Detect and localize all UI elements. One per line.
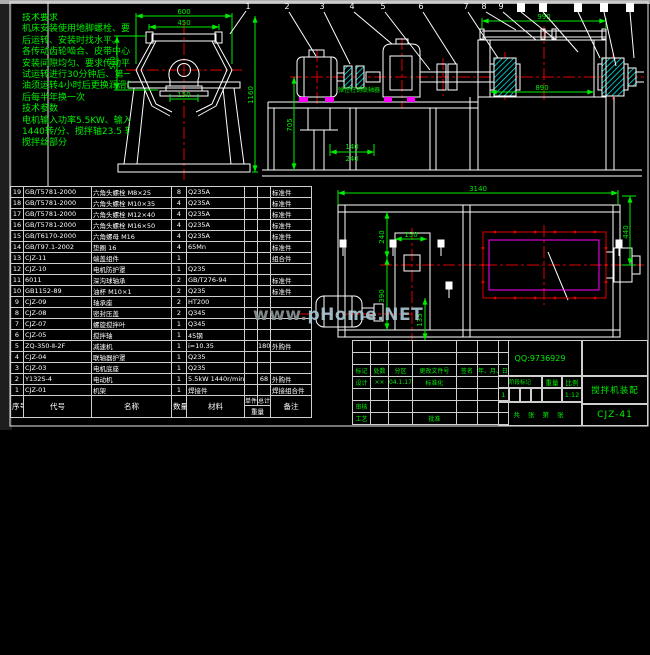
bom-name: 垫圈 16 bbox=[92, 242, 172, 253]
bom-code: CJZ-05 bbox=[24, 330, 92, 341]
bom-seq: 15 bbox=[11, 231, 24, 242]
bom-seq: 9 bbox=[11, 297, 24, 308]
dim-end-top: 600 bbox=[177, 8, 190, 16]
technical-notes: 技术要求机床安装使用地脚螺栓、要求安装后运转、安装时找水平。各传动齿轮啮合、皮带… bbox=[22, 13, 130, 150]
bom-seq: 2 bbox=[11, 374, 24, 385]
bom-seq: 19 bbox=[11, 187, 24, 198]
bom-material: Q235A bbox=[187, 231, 245, 242]
bom-seq: 18 bbox=[11, 198, 24, 209]
tb-stage-box bbox=[531, 388, 542, 402]
bom-weight-unit bbox=[245, 198, 258, 209]
bom-weight-unit bbox=[245, 330, 258, 341]
bom-weight-total bbox=[258, 220, 271, 231]
bom-header-weight-group: 单件 总计 重量 bbox=[245, 396, 270, 417]
tb-label-mark: 标记 bbox=[353, 365, 371, 377]
bom-name: 电机防护罩 bbox=[92, 264, 172, 275]
bom-seq: 12 bbox=[11, 264, 24, 275]
bom-header-weight: 重量 bbox=[245, 406, 270, 417]
bom-note: 组合件 bbox=[271, 253, 312, 264]
dim-side-b: 240 bbox=[345, 155, 358, 163]
bom-qty: 1 bbox=[172, 352, 187, 363]
tb-label-stage: 阶段标记 bbox=[498, 376, 542, 388]
bom-note: 标准件 bbox=[271, 242, 312, 253]
dim-plan-d1: 240 bbox=[378, 230, 386, 243]
tb-stage-value: 1 bbox=[498, 388, 509, 402]
dim-side-pipe: 990 bbox=[537, 13, 550, 21]
bom-weight-unit bbox=[245, 253, 258, 264]
balloon-leaders bbox=[289, 12, 634, 70]
bom-seq: 1 bbox=[11, 385, 24, 396]
balloon-squares bbox=[517, 3, 634, 12]
bom-name: 深沟球轴承 bbox=[92, 275, 172, 286]
tb-label-doc: 更改文件号 bbox=[412, 365, 456, 377]
bom-material: 焊接件 bbox=[187, 385, 245, 396]
bom-weight-unit bbox=[245, 286, 258, 297]
bom-code: ZQ-350-Ⅱ-2F bbox=[24, 341, 92, 352]
bom-weight-unit bbox=[245, 187, 258, 198]
bom-name: 电机底座 bbox=[92, 363, 172, 374]
bom-name: 六角头螺栓 M16×50 bbox=[92, 220, 172, 231]
side-view-dimensions bbox=[294, 18, 606, 170]
bom-row: 2 Y132S-4 电动机 1 5.5kW 1440r/min 68 外购件 bbox=[11, 374, 312, 385]
bom-material: Q235A bbox=[187, 198, 245, 209]
bom-header-total: 总计 bbox=[258, 396, 270, 405]
balloon-4: 4 bbox=[349, 2, 354, 11]
bom-note bbox=[271, 363, 312, 374]
bom-header-code: 代号 bbox=[24, 396, 92, 418]
bom-note: 外购件 bbox=[271, 374, 312, 385]
bom-weight-total bbox=[258, 352, 271, 363]
bom-code: CJZ-09 bbox=[24, 297, 92, 308]
bom-weight-total bbox=[258, 209, 271, 220]
dim-end-height: 1160 bbox=[247, 86, 255, 104]
dim-side-drum: 890 bbox=[535, 84, 548, 92]
bom-code: GB/T5781-2000 bbox=[24, 198, 92, 209]
note-line: 技术参数 bbox=[22, 104, 130, 115]
bom-qty: 2 bbox=[172, 308, 187, 319]
note-line: 后运转、安装时找水平。 bbox=[22, 36, 130, 47]
bom-weight-unit bbox=[245, 231, 258, 242]
cad-drawing-viewport: 600 450 560 1160 150 1 bbox=[0, 0, 650, 655]
bom-seq: 16 bbox=[11, 220, 24, 231]
tb-label-sign: 签名 bbox=[456, 365, 477, 377]
tb-design-date: 04.1.17 bbox=[389, 377, 413, 389]
bom-row: 6 CJZ-05 搅拌轴 1 45钢 bbox=[11, 330, 312, 341]
bom-name: 减速机 bbox=[92, 341, 172, 352]
bom-name: 搅拌轴 bbox=[92, 330, 172, 341]
bom-note bbox=[271, 352, 312, 363]
bom-weight-total bbox=[258, 187, 271, 198]
bom-table: 19 GB/T5781-2000 六角头螺栓 M8×25 8 Q235A 标准件… bbox=[10, 186, 312, 418]
bom-material: Q235 bbox=[187, 264, 245, 275]
bom-qty: 4 bbox=[172, 242, 187, 253]
note-line: 油须运转4小时后更换润滑油、其 bbox=[22, 81, 130, 92]
bom-qty: 4 bbox=[172, 209, 187, 220]
bom-qty: 4 bbox=[172, 220, 187, 231]
note-line: 1440转/分、搅拌轴23.5 转/分 bbox=[22, 127, 130, 138]
bom-name: 六角螺母 M16 bbox=[92, 231, 172, 242]
note-line: 后每半年换一次 bbox=[22, 93, 130, 104]
bom-qty: 1 bbox=[172, 264, 187, 275]
bom-material: Q345 bbox=[187, 308, 245, 319]
bom-seq: 11 bbox=[11, 275, 24, 286]
bom-name: 电动机 bbox=[92, 374, 172, 385]
balloon-1: 1 bbox=[245, 2, 250, 11]
balloon-6: 6 bbox=[418, 2, 423, 11]
bom-row: 16 GB/T5781-2000 六角头螺栓 M16×50 4 Q235A 标准… bbox=[11, 220, 312, 231]
bom-weight-total bbox=[258, 231, 271, 242]
note-line: 各传动齿轮啮合、皮带中心距等 bbox=[22, 47, 130, 58]
tb-label-zone: 分区 bbox=[389, 365, 413, 377]
bom-qty: 1 bbox=[172, 319, 187, 330]
dim-plan-right: 440 bbox=[622, 225, 630, 238]
bom-weight-total bbox=[258, 286, 271, 297]
bom-material: 5.5kW 1440r/min bbox=[187, 374, 245, 385]
bom-seq: 6 bbox=[11, 330, 24, 341]
bom-code: Y132S-4 bbox=[24, 374, 92, 385]
bom-seq: 8 bbox=[11, 308, 24, 319]
tb-qq: QQ:9736929 bbox=[498, 340, 582, 376]
bom-note bbox=[271, 330, 312, 341]
bom-header-note: 备注 bbox=[271, 396, 312, 418]
bom-weight-unit bbox=[245, 341, 258, 352]
bom-note: 标准件 bbox=[271, 275, 312, 286]
bom-seq: 7 bbox=[11, 319, 24, 330]
bom-weight-unit bbox=[245, 352, 258, 363]
bom-note: 标准件 bbox=[271, 286, 312, 297]
bom-material: Q345 bbox=[187, 319, 245, 330]
bom-qty: 1 bbox=[172, 363, 187, 374]
dim-end-flange: 450 bbox=[177, 19, 190, 27]
datum-flags bbox=[340, 240, 622, 298]
bom-header-qty: 数量 bbox=[172, 396, 187, 418]
bom-row: 19 GB/T5781-2000 六角头螺栓 M8×25 8 Q235A 标准件 bbox=[11, 187, 312, 198]
tb-stage-box bbox=[520, 388, 531, 402]
bom-header-seq: 序号 bbox=[11, 396, 24, 418]
bom-material bbox=[187, 253, 245, 264]
bom-material: Q235 bbox=[187, 352, 245, 363]
end-view: 600 450 560 1160 150 1 bbox=[109, 2, 258, 180]
bom-material: Q235 bbox=[187, 363, 245, 374]
bom-code: GB/T5781-2000 bbox=[24, 220, 92, 231]
bom-qty: 1 bbox=[172, 385, 187, 396]
bom-name: 油杯 M10×1 bbox=[92, 286, 172, 297]
bom-qty: 2 bbox=[172, 297, 187, 308]
tb-sheets: 共 张 第 张 bbox=[498, 402, 582, 426]
bom-material: Q235 bbox=[187, 286, 245, 297]
tb-label-count: 处数 bbox=[371, 365, 389, 377]
bom-row: 3 CJZ-03 电机底座 1 Q235 bbox=[11, 363, 312, 374]
dim-plan-d2: 150 bbox=[404, 231, 417, 239]
tb-design-sign: ×× bbox=[371, 377, 389, 389]
bom-note: 外购件 bbox=[271, 341, 312, 352]
bom-weight-total bbox=[258, 275, 271, 286]
title-block: 标记 处数 分区 更改文件号 签名 年、月、日 设计 ×× 04.1.17 标准… bbox=[352, 340, 648, 426]
bom-qty: 4 bbox=[172, 231, 187, 242]
tb-drawing-number: CJZ-41 bbox=[582, 404, 648, 426]
bom-note: 标准件 bbox=[271, 209, 312, 220]
bom-name: 六角头螺栓 M10×35 bbox=[92, 198, 172, 209]
dim-side-height: 705 bbox=[286, 118, 294, 131]
tb-label-standard: 标准化 bbox=[412, 377, 456, 389]
title-block-revision-table: 标记 处数 分区 更改文件号 签名 年、月、日 设计 ×× 04.1.17 标准… bbox=[352, 340, 509, 425]
tb-weight-value bbox=[542, 388, 562, 402]
balloon-5: 5 bbox=[380, 2, 385, 11]
note-line: 技术要求 bbox=[22, 13, 130, 24]
balloon-9: 9 bbox=[498, 2, 503, 11]
note-line: 电机输入功率5.5KW、输入转速 bbox=[22, 116, 130, 127]
bom-weight-unit bbox=[245, 385, 258, 396]
bom-code: GB1152-89 bbox=[24, 286, 92, 297]
bom-note bbox=[271, 264, 312, 275]
balloon-2: 2 bbox=[284, 2, 289, 11]
bom-seq: 14 bbox=[11, 242, 24, 253]
bom-weight-unit bbox=[245, 220, 258, 231]
bom-header-row: 序号 代号 名称 数量 材料 单件 总计 重量 备注 bbox=[11, 396, 312, 418]
bom-weight-unit bbox=[245, 242, 258, 253]
bom-qty: 1 bbox=[172, 374, 187, 385]
bom-name: 端盖组件 bbox=[92, 253, 172, 264]
bom-header-material: 材料 bbox=[187, 396, 245, 418]
machine-feet bbox=[299, 97, 415, 102]
dim-side-a: 140 bbox=[345, 143, 358, 151]
tb-drawing-title: 搅拌机装配 bbox=[582, 376, 648, 404]
bom-seq: 13 bbox=[11, 253, 24, 264]
tb-label-approve: 批准 bbox=[412, 413, 456, 425]
dim-end-hub: 150 bbox=[177, 91, 190, 99]
bom-note: 标准件 bbox=[271, 231, 312, 242]
bom-header-unit: 单件 bbox=[245, 396, 258, 405]
bom-material: Q235A bbox=[187, 220, 245, 231]
bom-row: 15 GB/T6170-2000 六角螺母 M16 4 Q235A 标准件 bbox=[11, 231, 312, 242]
tb-label-design: 设计 bbox=[353, 377, 371, 389]
note-line: 试运转进行30分钟后、第一次换 bbox=[22, 70, 130, 81]
bom-material: 65Mn bbox=[187, 242, 245, 253]
bom-material: HT200 bbox=[187, 297, 245, 308]
bom-weight-total bbox=[258, 363, 271, 374]
note-line: 机床安装使用地脚螺栓、要求安装 bbox=[22, 24, 130, 35]
bom-note: 标准件 bbox=[271, 220, 312, 231]
bom-name: 密封压盖 bbox=[92, 308, 172, 319]
bom-weight-total: 180 bbox=[258, 341, 271, 352]
bom-note: 焊接组合件 bbox=[271, 385, 312, 396]
balloon-7: 7 bbox=[463, 2, 468, 11]
bom-code: CJZ-01 bbox=[24, 385, 92, 396]
bom-qty: 2 bbox=[172, 275, 187, 286]
bom-row: 11 6011 深沟球轴承 2 GB/T276-94 标准件 bbox=[11, 275, 312, 286]
bom-weight-total bbox=[258, 198, 271, 209]
bom-seq: 4 bbox=[11, 352, 24, 363]
watermark-main: pHome.NET bbox=[308, 305, 424, 325]
bom-weight-unit bbox=[245, 264, 258, 275]
bom-seq: 17 bbox=[11, 209, 24, 220]
tb-label-process: 工艺 bbox=[353, 413, 371, 425]
bom-row: 18 GB/T5781-2000 六角头螺栓 M10×35 4 Q235A 标准… bbox=[11, 198, 312, 209]
bom-qty: 1 bbox=[172, 330, 187, 341]
balloon-8: 8 bbox=[481, 2, 486, 11]
bom-weight-total bbox=[258, 330, 271, 341]
bom-code: CJZ-04 bbox=[24, 352, 92, 363]
bom-material: Q235A bbox=[187, 187, 245, 198]
bom-name: 机架 bbox=[92, 385, 172, 396]
bom-name: 轴承座 bbox=[92, 297, 172, 308]
bom-note: 标准件 bbox=[271, 198, 312, 209]
tb-label-scale: 比例 bbox=[562, 376, 582, 388]
bom-code: 6011 bbox=[24, 275, 92, 286]
tb-company bbox=[582, 340, 648, 376]
bom-seq: 10 bbox=[11, 286, 24, 297]
bom-qty: 4 bbox=[172, 198, 187, 209]
bom-weight-unit bbox=[245, 275, 258, 286]
bom-qty: 1 bbox=[172, 341, 187, 352]
bom-name: 螺旋搅拌叶 bbox=[92, 319, 172, 330]
bom-row: 5 ZQ-350-Ⅱ-2F 减速机 1 i=10.35 180 外购件 bbox=[11, 341, 312, 352]
bom-code: CJZ-10 bbox=[24, 264, 92, 275]
bom-row: 1 CJZ-01 机架 1 焊接件 焊接组合件 bbox=[11, 385, 312, 396]
bom-row: 4 CJZ-04 联轴器护罩 1 Q235 bbox=[11, 352, 312, 363]
bom-weight-total bbox=[258, 385, 271, 396]
watermark-prefix: www. bbox=[253, 305, 308, 325]
dim-plan-overall: 3140 bbox=[469, 185, 487, 193]
bom-row: 14 GB/T97.1-2002 垫圈 16 4 65Mn 标准件 bbox=[11, 242, 312, 253]
watermark: www.pHome.NET bbox=[253, 305, 423, 325]
tb-scale-value: 1:12 bbox=[562, 388, 582, 402]
bom-qty: 2 bbox=[172, 286, 187, 297]
bom-code: GB/T97.1-2002 bbox=[24, 242, 92, 253]
bom-weight-unit bbox=[245, 363, 258, 374]
bom-code: CJZ-11 bbox=[24, 253, 92, 264]
bom-code: GB/T5781-2000 bbox=[24, 209, 92, 220]
bom-name: 联轴器护罩 bbox=[92, 352, 172, 363]
bom-weight-total bbox=[258, 264, 271, 275]
tb-label-weight: 重量 bbox=[542, 376, 562, 388]
bom-row: 17 GB/T5781-2000 六角头螺栓 M12×40 4 Q235A 标准… bbox=[11, 209, 312, 220]
bom-row: 13 CJZ-11 端盖组件 1 组合件 bbox=[11, 253, 312, 264]
bom-qty: 8 bbox=[172, 187, 187, 198]
coupling-label: 弹性柱销联轴器 bbox=[338, 86, 380, 94]
tb-label-check: 审核 bbox=[353, 401, 371, 413]
bom-material: GB/T276-94 bbox=[187, 275, 245, 286]
balloon-3: 3 bbox=[319, 2, 324, 11]
bom-code: CJZ-03 bbox=[24, 363, 92, 374]
bom-header-name: 名称 bbox=[92, 396, 172, 418]
bom-material: 45钢 bbox=[187, 330, 245, 341]
bom-row: 12 CJZ-10 电机防护罩 1 Q235 bbox=[11, 264, 312, 275]
bom-material: i=10.35 bbox=[187, 341, 245, 352]
bom-note: 标准件 bbox=[271, 187, 312, 198]
note-line: 搅拌丝部分 bbox=[22, 138, 130, 149]
bom-weight-unit bbox=[245, 209, 258, 220]
note-line: 安装间隙均匀、要求传动平稳有序。 bbox=[22, 59, 130, 70]
bom-seq: 5 bbox=[11, 341, 24, 352]
bom-name: 六角头螺栓 M8×25 bbox=[92, 187, 172, 198]
bom-code: CJZ-08 bbox=[24, 308, 92, 319]
bom-code: CJZ-07 bbox=[24, 319, 92, 330]
bom-weight-total bbox=[258, 253, 271, 264]
dim-plan-d3: 390 bbox=[378, 289, 386, 302]
bom-weight-total: 68 bbox=[258, 374, 271, 385]
bom-seq: 3 bbox=[11, 363, 24, 374]
bom-code: GB/T6170-2000 bbox=[24, 231, 92, 242]
side-view: 705 990 890 140 240 弹性柱销联轴器 2 3 4 5 6 7 … bbox=[262, 2, 644, 176]
bom-weight-total bbox=[258, 242, 271, 253]
bom-row: 10 GB1152-89 油杯 M10×1 2 Q235 标准件 bbox=[11, 286, 312, 297]
bom-weight-unit bbox=[245, 374, 258, 385]
bom-material: Q235A bbox=[187, 209, 245, 220]
bom-code: GB/T5781-2000 bbox=[24, 187, 92, 198]
bom-qty: 1 bbox=[172, 253, 187, 264]
tb-stage-box bbox=[509, 388, 520, 402]
bom-name: 六角头螺栓 M12×40 bbox=[92, 209, 172, 220]
